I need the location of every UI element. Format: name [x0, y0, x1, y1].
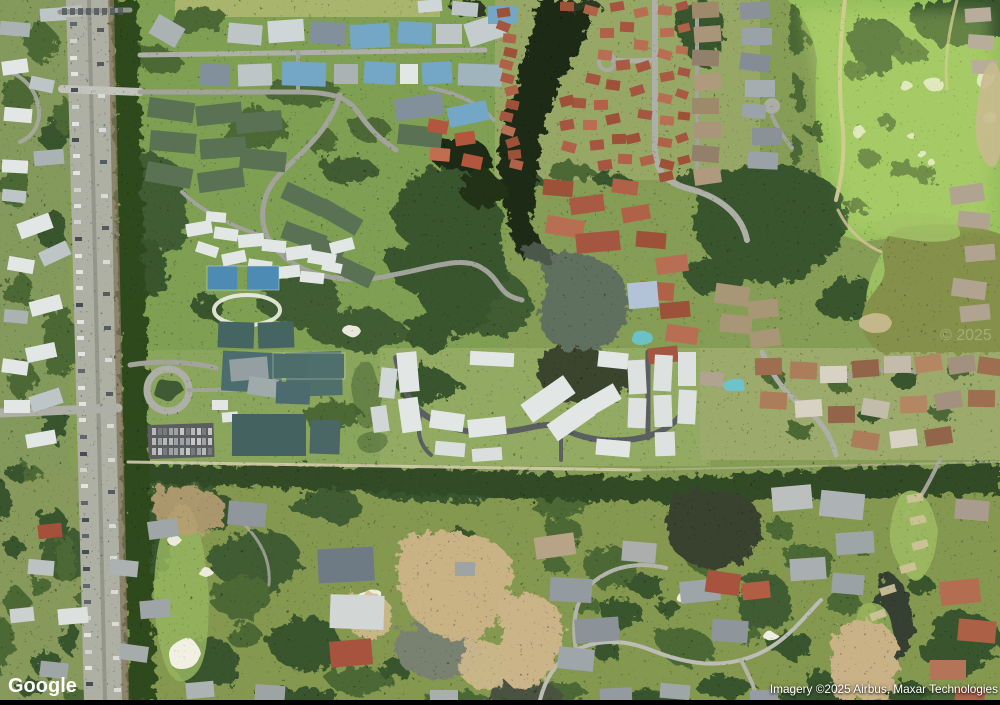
svg-text:© 2025: © 2025 [940, 327, 992, 344]
svg-text:Imagery ©2025 Airbus, Maxar Te: Imagery ©2025 Airbus, Maxar Technologies [770, 682, 998, 696]
svg-text:Google: Google [8, 675, 77, 697]
